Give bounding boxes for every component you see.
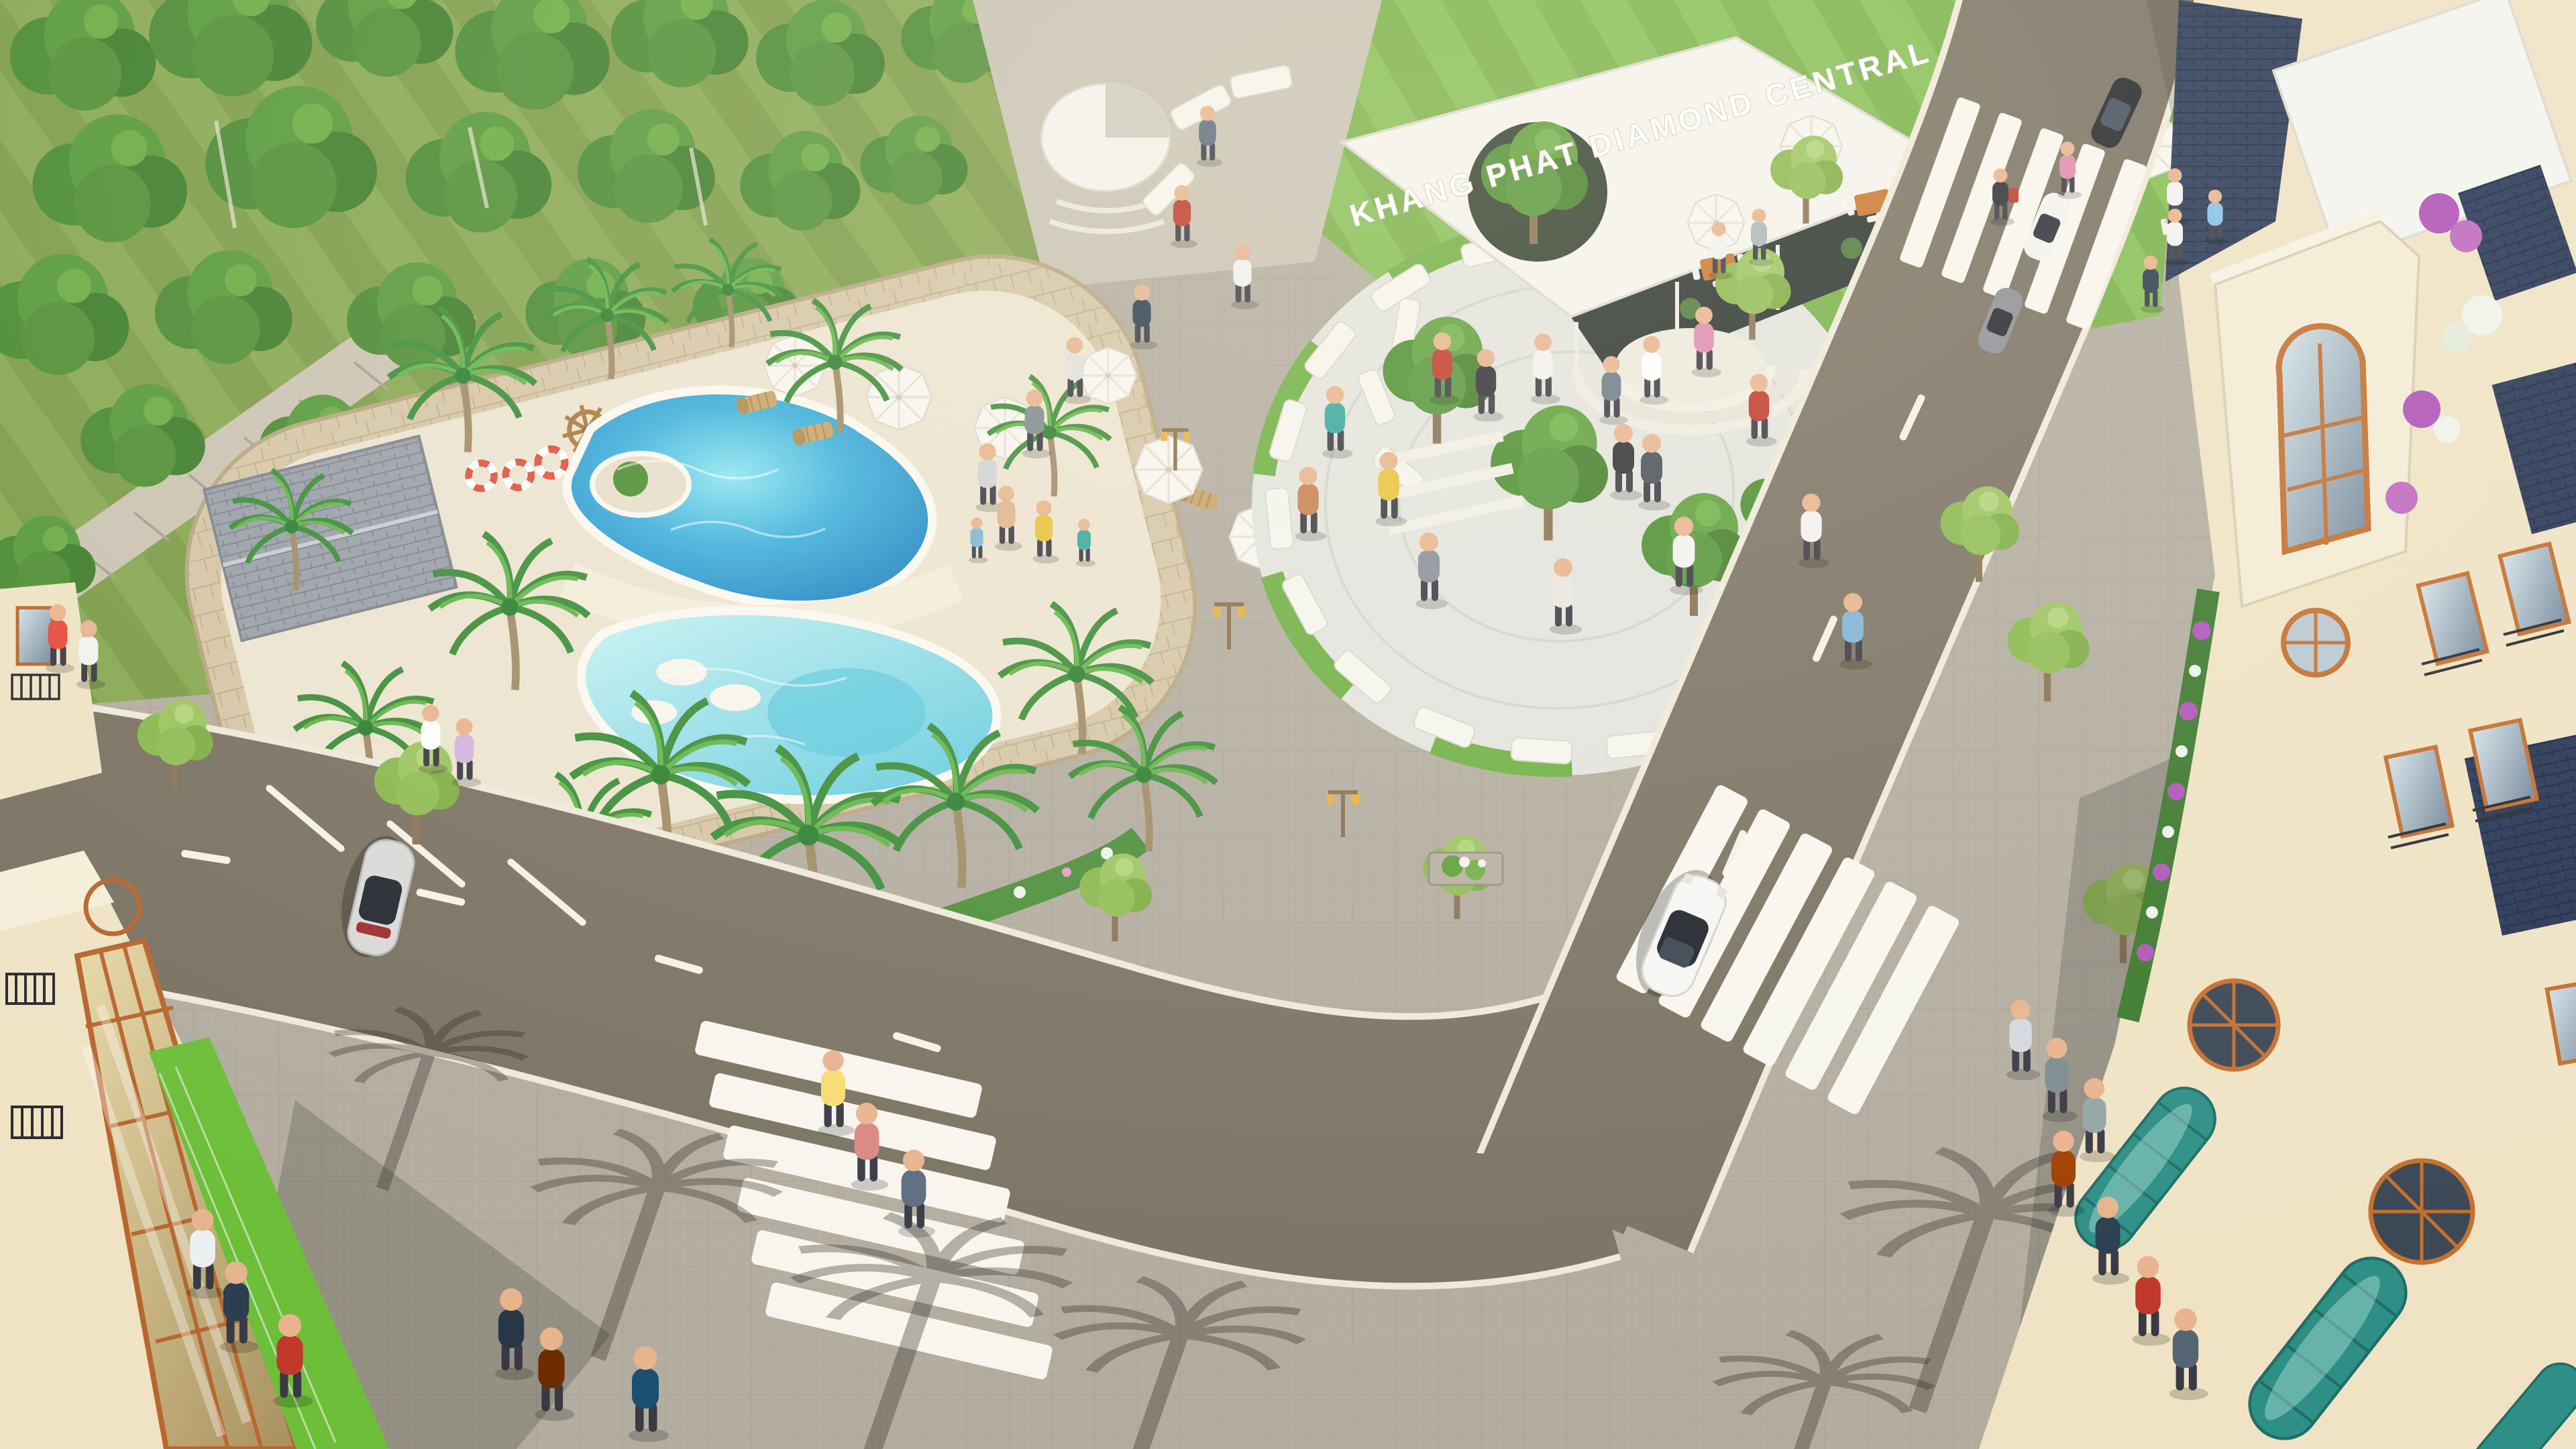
rendering-canvas: KHANG PHAT DIAMOND CENTRAL	[0, 0, 2576, 1449]
aerial-resort-render: KHANG PHAT DIAMOND CENTRAL	[0, 0, 2576, 1449]
sunlight-overlay	[0, 0, 2576, 1449]
